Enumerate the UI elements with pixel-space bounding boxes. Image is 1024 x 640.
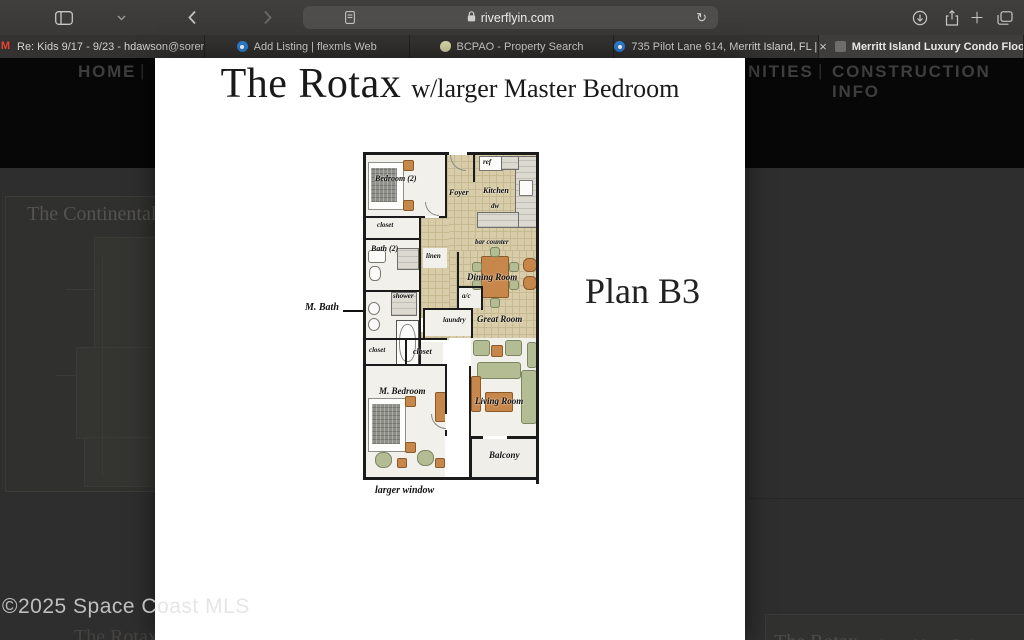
nightstand bbox=[403, 200, 414, 211]
dishwasher-counter bbox=[477, 212, 519, 228]
back-button[interactable] bbox=[182, 0, 202, 35]
shower-label: shower bbox=[393, 292, 414, 300]
dining-room-label: Dining Room bbox=[467, 272, 517, 282]
nav-amenities-link-fragment[interactable]: NITIES bbox=[748, 62, 814, 82]
nav-home-link[interactable]: HOME bbox=[78, 62, 136, 82]
small-table bbox=[397, 458, 407, 468]
bedroom-chair bbox=[375, 452, 392, 468]
small-table bbox=[435, 458, 445, 468]
mbath-sink bbox=[368, 302, 380, 315]
bcpao-icon bbox=[440, 41, 451, 52]
tab-bcpao[interactable]: BCPAO - Property Search bbox=[410, 35, 615, 58]
share-icon[interactable] bbox=[940, 0, 964, 35]
nightstand bbox=[405, 396, 416, 407]
living-sofa bbox=[521, 370, 537, 424]
ref-label: ref bbox=[483, 158, 491, 166]
armchair bbox=[473, 340, 490, 356]
flexmls-pin-icon bbox=[614, 41, 625, 52]
foyer-label: Foyer bbox=[449, 188, 469, 197]
sofa bbox=[477, 362, 521, 379]
bar-counter-label: bar counter bbox=[475, 238, 509, 246]
great-room-label: Great Room bbox=[477, 314, 522, 324]
master-tub bbox=[396, 320, 419, 366]
bedroom-chair bbox=[417, 450, 434, 466]
side-chair bbox=[523, 258, 537, 272]
background-box-edge bbox=[748, 498, 1024, 499]
tab-gmail[interactable]: M Re: Kids 9/17 - 9/23 - hdawson@sorense… bbox=[0, 35, 205, 58]
sidebar-icon[interactable] bbox=[50, 0, 78, 35]
tab-bar: M Re: Kids 9/17 - 9/23 - hdawson@sorense… bbox=[0, 35, 1024, 58]
background-box-edge bbox=[748, 168, 749, 498]
flexmls-pin-icon bbox=[237, 41, 248, 52]
https-lock-icon bbox=[467, 11, 476, 25]
kitchen-label: Kitchen bbox=[483, 186, 509, 195]
m-bath-label: M. Bath bbox=[305, 302, 339, 313]
bath2-tub bbox=[397, 248, 419, 270]
tab-flexmls-add-listing[interactable]: Add Listing | flexmls Web bbox=[205, 35, 410, 58]
larger-window-label: larger window bbox=[375, 485, 434, 496]
ac-label: a/c bbox=[462, 292, 471, 300]
gmail-icon: M bbox=[0, 41, 11, 52]
floorplan-graphic: Bedroom (2) closet Bath (2) Foyer Kitche… bbox=[363, 152, 539, 484]
toilet bbox=[369, 266, 381, 281]
closet-label: closet bbox=[413, 347, 432, 356]
nav-separator: | bbox=[818, 61, 822, 81]
linen-label: linen bbox=[426, 252, 441, 260]
plan-b3-label: Plan B3 bbox=[585, 270, 700, 312]
url-text: riverflyin.com bbox=[481, 11, 555, 25]
tv-console bbox=[471, 376, 481, 412]
forward-button[interactable] bbox=[258, 0, 278, 35]
plan-title-row: The Rotax w/larger Master Bedroom bbox=[155, 60, 745, 108]
closet-label: closet bbox=[369, 346, 385, 354]
screenshot-stage: riverflyin.com ↻ ＋ M Re: Kids 9/17 - 9/2… bbox=[0, 0, 1024, 640]
bottom-right-rotax-title: The Rotax bbox=[774, 631, 858, 640]
laundry-label: laundry bbox=[443, 316, 466, 324]
plan-title: The Rotax bbox=[221, 60, 402, 108]
nav-construction-info-link[interactable]: CONSTRUCTION INFO bbox=[832, 62, 1024, 102]
site-favicon bbox=[835, 41, 846, 52]
bottom-left-rotax-partial: The Rotax bbox=[74, 626, 158, 640]
bedroom2-label: Bedroom (2) bbox=[375, 174, 417, 183]
plan-subtitle: w/larger Master Bedroom bbox=[411, 74, 679, 104]
new-tab-button[interactable]: ＋ bbox=[966, 0, 988, 35]
tab-735-pilot-lane[interactable]: 735 Pilot Lane 614, Merritt Island, FL |… bbox=[614, 35, 819, 58]
ottoman bbox=[491, 345, 503, 357]
bottom-right-rotax-subtitle: w/ larger Master Bedroom bbox=[864, 636, 1001, 640]
downloads-icon[interactable] bbox=[908, 0, 932, 35]
sidebar-chevron-down-icon[interactable] bbox=[112, 0, 130, 35]
refresh-icon[interactable]: ↻ bbox=[696, 10, 707, 26]
dining-chair bbox=[472, 262, 482, 272]
next-floorplan-thumbnail[interactable]: The Rotaxw/ larger Master Bedroom bbox=[765, 614, 1024, 640]
address-bar[interactable]: riverflyin.com ↻ bbox=[303, 6, 718, 29]
tab-overview-icon[interactable] bbox=[992, 0, 1018, 35]
closet-label: closet bbox=[377, 221, 393, 229]
continental-floorplan-thumbnail[interactable]: The Continental bbox=[5, 196, 158, 492]
dining-chair bbox=[490, 247, 500, 257]
continental-title: The Continental bbox=[27, 203, 156, 226]
dw-label: dw bbox=[491, 202, 499, 210]
tab-merritt-island-floorplans[interactable]: × Merritt Island Luxury Condo Floorplans… bbox=[819, 35, 1024, 58]
nightstand bbox=[405, 442, 416, 453]
master-mattress bbox=[372, 404, 400, 444]
kitchen-sink bbox=[519, 180, 533, 196]
kitchen-counter bbox=[501, 156, 519, 170]
m-bedroom-label: M. Bedroom bbox=[379, 386, 426, 396]
close-tab-icon[interactable]: × bbox=[819, 39, 827, 54]
browser-toolbar: riverflyin.com ↻ ＋ bbox=[0, 0, 1024, 36]
reader-page-icon[interactable] bbox=[345, 11, 355, 27]
living-room-label: Living Room bbox=[475, 396, 523, 406]
armchair bbox=[505, 340, 522, 356]
dining-chair bbox=[490, 298, 500, 308]
mbath-sink bbox=[368, 318, 380, 331]
nightstand bbox=[403, 160, 414, 171]
dining-chair bbox=[509, 262, 519, 272]
bath2-label: Bath (2) bbox=[371, 244, 398, 253]
floorplan-lightbox[interactable]: The Rotax w/larger Master Bedroom Plan B… bbox=[155, 58, 745, 640]
balcony-label: Balcony bbox=[489, 450, 520, 460]
nav-separator: | bbox=[140, 61, 144, 81]
side-chair bbox=[523, 276, 537, 290]
